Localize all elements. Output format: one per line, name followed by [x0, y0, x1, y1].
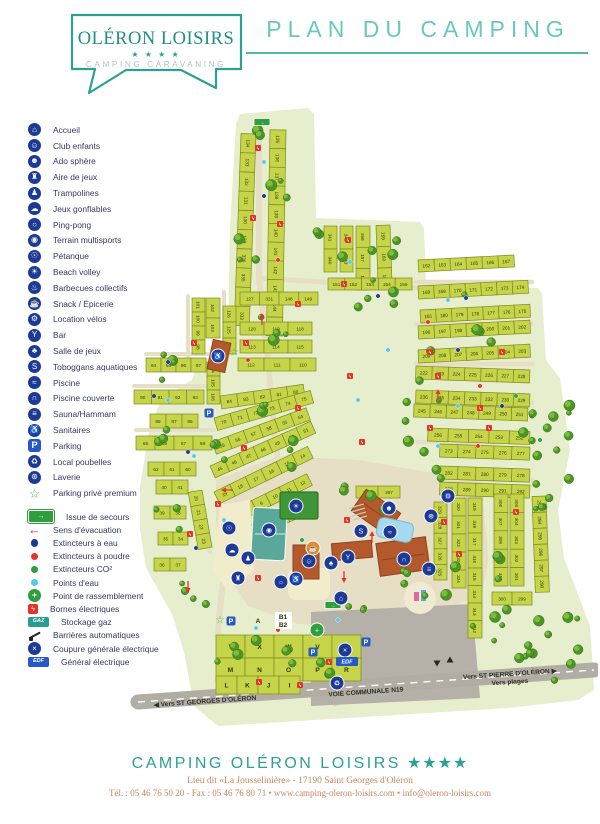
tree — [313, 228, 321, 236]
tree — [316, 658, 325, 667]
legend: ⌂Accueil☺Club enfants☻Ado sphère♜Aire de… — [28, 122, 228, 668]
legend-item-barrieres-automatiques: Barrières automatiques — [28, 629, 228, 642]
tree — [255, 130, 264, 139]
legend-item-issue-de-secours: →Issue de secours — [28, 510, 228, 523]
svg-text:280: 280 — [481, 472, 489, 477]
tree — [533, 615, 544, 626]
tree — [325, 668, 335, 678]
tree — [252, 256, 260, 264]
plot-strip: 341340 — [324, 226, 337, 272]
svg-text:300: 300 — [498, 596, 506, 601]
plot-strip: 127331148149 — [240, 292, 318, 305]
ado-sphere-icon: ☻ — [28, 155, 41, 168]
legend-label: Salle de jeux — [53, 346, 101, 356]
tree — [288, 659, 296, 667]
issue-de-secours-sign: → — [254, 119, 270, 127]
bar-icon: Y — [341, 550, 355, 564]
sauna-hammam-icon: ≡ — [28, 408, 41, 421]
svg-text:236: 236 — [420, 394, 428, 399]
svg-text:☁: ☁ — [229, 547, 236, 554]
svg-text:321: 321 — [456, 521, 461, 529]
legend-label: Parking privé premium — [53, 488, 137, 498]
legend-label: Accueil — [53, 125, 80, 135]
svg-text:248: 248 — [467, 410, 475, 415]
tree — [366, 490, 377, 501]
svg-text:281: 281 — [463, 471, 471, 476]
legend-label: Point de rassemblement — [53, 591, 143, 601]
tree — [553, 447, 560, 454]
legend-item-sauna-hammam: ≡Sauna/Hammam — [28, 406, 228, 422]
legend-label: Snack / Épicerie — [53, 299, 114, 309]
svg-text:319: 319 — [472, 503, 477, 511]
svg-text:154: 154 — [383, 282, 391, 287]
tree — [564, 474, 573, 483]
svg-text:110: 110 — [299, 362, 307, 367]
terrain-multisports-icon: ◉ — [262, 523, 276, 537]
tree — [403, 569, 410, 576]
svg-text:170: 170 — [454, 288, 462, 293]
legend-label: Piscine — [53, 378, 80, 388]
playground-toy — [414, 592, 419, 601]
tree — [566, 659, 575, 668]
edf-label: EDF — [336, 657, 358, 666]
general-electrique-icon: EDF — [28, 657, 49, 667]
legend-item-sanitaires: ♿Sanitaires — [28, 422, 228, 438]
svg-text:☀: ☀ — [293, 502, 299, 510]
svg-text:167: 167 — [502, 259, 510, 264]
legend-item-snack-epicerie: ☕Snack / Épicerie — [28, 296, 228, 312]
local-poubelles-icon: ♻ — [330, 676, 344, 690]
svg-text:165: 165 — [470, 261, 478, 266]
borne-electrique-marker: ϟ — [477, 405, 483, 411]
svg-text:160: 160 — [381, 253, 386, 261]
svg-text:139: 139 — [274, 210, 279, 218]
svg-text:B2: B2 — [279, 622, 288, 629]
svg-text:151: 151 — [332, 282, 340, 287]
legend-label: Local poubelles — [53, 457, 111, 467]
borne-electrique-marker: ϟ — [441, 519, 447, 525]
tree — [529, 409, 537, 417]
legend-label: Piscine couverte — [53, 393, 114, 403]
svg-text:278: 278 — [517, 473, 525, 478]
legend-item-points-eau: Points d'eau — [28, 576, 228, 589]
tree — [526, 649, 534, 657]
svg-text:♟: ♟ — [245, 554, 251, 562]
svg-text:136: 136 — [275, 154, 280, 162]
legend-label: Barbecues collectifs — [53, 283, 127, 293]
petanque-icon: ☉ — [28, 250, 41, 263]
svg-text:♜: ♜ — [235, 574, 241, 582]
tree — [283, 194, 290, 201]
plot-strip: 162163164165166167 — [418, 255, 514, 272]
svg-text:289: 289 — [463, 487, 471, 492]
svg-text:333: 333 — [239, 312, 244, 320]
svg-text:M: M — [228, 667, 233, 674]
borne-electrique-marker: ϟ — [344, 517, 350, 523]
svg-text:207: 207 — [454, 352, 462, 357]
svg-text:234: 234 — [452, 396, 460, 401]
svg-text:P: P — [311, 650, 316, 657]
tree — [263, 402, 268, 407]
plot-strip: 282281280279278 — [440, 466, 530, 482]
tree — [403, 398, 411, 406]
tree — [339, 486, 348, 495]
plot-strip: 151152153154155 — [328, 278, 412, 290]
tree — [266, 180, 277, 191]
extincteur-dot — [456, 404, 460, 408]
parking-icon: P — [28, 439, 41, 452]
svg-text:251: 251 — [516, 412, 524, 417]
bornes-electriques-icon: ϟ — [28, 604, 38, 614]
tree — [390, 300, 398, 308]
tree — [287, 447, 293, 453]
tree — [416, 377, 424, 385]
legend-item-salle-de-jeux: ♣Salle de jeux — [28, 343, 228, 359]
legend-label: Extincteurs CO² — [53, 564, 112, 574]
svg-text:≈: ≈ — [388, 529, 392, 536]
tree — [518, 427, 528, 437]
extincteur-dot — [276, 258, 280, 262]
svg-text:197: 197 — [438, 329, 446, 334]
legend-label: Pétanque — [53, 251, 89, 261]
svg-text:118: 118 — [296, 326, 304, 331]
footer-stars: ★★★★ — [407, 755, 468, 772]
svg-text:115: 115 — [296, 344, 304, 349]
svg-text:L: L — [225, 682, 229, 689]
club-enfants-icon: ☺ — [302, 554, 316, 568]
svg-text:138: 138 — [274, 191, 279, 199]
accueil-icon: ⌂ — [28, 123, 41, 136]
svg-text:313: 313 — [472, 608, 477, 616]
tree — [490, 611, 501, 622]
svg-text:317: 317 — [472, 538, 477, 546]
svg-text:253: 253 — [495, 435, 503, 440]
svg-text:322: 322 — [456, 539, 461, 547]
svg-text:277: 277 — [517, 451, 525, 456]
legend-item-piscine-couverte: ∩Piscine couverte — [28, 391, 228, 407]
svg-text:208: 208 — [438, 353, 446, 358]
barbecues-icon: ♨ — [28, 281, 41, 294]
extincteur-dot — [246, 358, 250, 362]
extincteur-dot — [348, 260, 352, 264]
svg-text:134: 134 — [245, 139, 250, 147]
footer-address: Lieu dit «La Jousselinière» - 17190 Sain… — [0, 776, 600, 786]
svg-text:∩: ∩ — [401, 556, 406, 563]
tree — [548, 412, 558, 422]
beach-volley-icon: ☀ — [289, 499, 303, 513]
borne-electrique-marker: ϟ — [347, 373, 353, 379]
legend-label: Sanitaires — [53, 425, 90, 435]
svg-text:247: 247 — [450, 410, 458, 415]
svg-text:326: 326 — [438, 553, 443, 561]
plot-strip: 306307308309310 — [494, 494, 508, 586]
borne-electrique-marker: ϟ — [255, 575, 261, 581]
aire-de-jeux-icon: ♜ — [28, 171, 41, 184]
legend-item-terrain-multisports: ◉Terrain multisports — [28, 233, 228, 249]
svg-text:230: 230 — [501, 397, 509, 402]
rassemblement-icon: + — [28, 589, 41, 602]
ping-pong-icon: ○ — [274, 575, 288, 589]
svg-text:301: 301 — [514, 573, 519, 581]
sanitaires-icon: ♿ — [289, 572, 303, 586]
extincteur-dot — [426, 320, 430, 324]
svg-text:341: 341 — [328, 234, 333, 242]
svg-text:140: 140 — [273, 229, 278, 237]
legend-label: Club enfants — [53, 141, 100, 151]
svg-text:A: A — [256, 618, 261, 625]
tree — [545, 631, 552, 638]
svg-text:307: 307 — [498, 518, 503, 526]
svg-text:166: 166 — [486, 260, 494, 265]
extincteur-dot — [446, 298, 450, 302]
parking-icon: P — [362, 638, 371, 647]
borne-electrique-marker: ϟ — [456, 551, 462, 557]
tree — [470, 623, 476, 629]
tree — [514, 653, 524, 663]
extincteur-dot — [464, 296, 468, 300]
borne-electrique-marker: ϟ — [427, 425, 433, 431]
sauna-hammam-icon: ≡ — [422, 562, 436, 576]
legend-item-parking: PParking — [28, 438, 228, 454]
svg-text:☕: ☕ — [309, 543, 318, 552]
snack-epicerie-icon: ☕ — [28, 297, 41, 310]
svg-text:177: 177 — [487, 310, 495, 315]
svg-text:120: 120 — [248, 326, 256, 331]
svg-text:171: 171 — [469, 287, 477, 292]
svg-text:222: 222 — [420, 370, 428, 375]
plot-strip: 273274275276277 — [440, 444, 530, 460]
salle-de-jeux-icon: ♣ — [28, 345, 41, 358]
borne-electrique-marker: ϟ — [297, 682, 303, 688]
svg-text:232: 232 — [485, 397, 493, 402]
svg-text:169: 169 — [438, 289, 446, 294]
tree — [500, 622, 505, 627]
legend-item-barbecues: ♨Barbecues collectifs — [28, 280, 228, 296]
tree — [288, 436, 298, 446]
svg-text:164: 164 — [454, 261, 462, 266]
toboggans-icon: S — [354, 524, 368, 538]
svg-text:202: 202 — [518, 325, 526, 330]
extincteur-dot — [476, 444, 480, 448]
extincteur-dot — [262, 194, 266, 198]
svg-text:S: S — [359, 528, 364, 535]
tree — [524, 642, 532, 650]
legend-label: Bar — [53, 330, 66, 340]
legend-label: Terrain multisports — [53, 235, 121, 245]
svg-text:I: I — [289, 682, 291, 689]
footer: CAMPING OLÉRON LOISIRS★★★★ Lieu dit «La … — [0, 753, 600, 798]
tree — [492, 638, 497, 643]
legend-item-laverie: ⊛Laverie — [28, 470, 228, 486]
footer-title: CAMPING OLÉRON LOISIRS★★★★ — [0, 753, 600, 773]
svg-text:176: 176 — [503, 310, 511, 315]
sanitaires-icon: ♿ — [28, 424, 41, 437]
borne-electrique-marker: ϟ — [427, 349, 433, 355]
borne-electrique-marker: ϟ — [486, 425, 492, 431]
svg-text:224: 224 — [452, 372, 460, 377]
svg-text:173: 173 — [501, 286, 509, 291]
svg-text:P: P — [229, 619, 234, 626]
svg-text:⚙: ⚙ — [445, 492, 451, 500]
svg-text:227: 227 — [501, 373, 509, 378]
ping-pong-icon: ○ — [28, 218, 41, 231]
svg-text:131: 131 — [243, 197, 248, 205]
svg-text:304: 304 — [514, 518, 519, 526]
svg-text:256: 256 — [434, 433, 442, 438]
tree — [234, 234, 245, 245]
svg-text:245: 245 — [418, 408, 426, 413]
salle-de-jeux-icon: ♣ — [324, 556, 338, 570]
legend-label: Location vélos — [53, 314, 107, 324]
legend-label: Ado sphère — [53, 156, 96, 166]
svg-text:135: 135 — [275, 135, 280, 143]
tree — [388, 249, 398, 259]
svg-text:162: 162 — [422, 263, 430, 268]
svg-text:☺: ☺ — [305, 558, 312, 565]
svg-text:200: 200 — [486, 326, 494, 331]
svg-text:148: 148 — [285, 296, 293, 301]
tree — [450, 562, 460, 572]
tree — [493, 551, 503, 561]
borne-electrique-marker: ϟ — [499, 349, 505, 355]
legend-label: Issue de secours — [66, 512, 129, 522]
bar-icon: Y — [28, 329, 41, 342]
tree — [420, 447, 429, 456]
svg-text:249: 249 — [483, 411, 491, 416]
sens-evacuation-icon: ← — [28, 523, 41, 536]
legend-item-jeux-gonflables: ☁Jeux gonflables — [28, 201, 228, 217]
barrieres-automatiques-icon — [28, 629, 41, 642]
svg-text:K: K — [245, 682, 250, 689]
accueil-icon: ⌂ — [334, 591, 348, 605]
footer-title-text: CAMPING OLÉRON LOISIRS — [132, 755, 401, 772]
legend-label: Barrières automatiques — [53, 630, 140, 640]
svg-text:×: × — [343, 647, 347, 654]
plot-strip: 300299 — [492, 592, 532, 605]
svg-text:158: 158 — [360, 233, 365, 241]
legend-label: Aire de jeux — [53, 172, 97, 182]
extincteur-dot — [514, 394, 518, 398]
location-velos-icon: ⚙ — [28, 313, 41, 326]
tree — [437, 474, 445, 482]
svg-text:275: 275 — [481, 450, 489, 455]
svg-text:308: 308 — [498, 536, 503, 544]
legend-item-parking-premium: ☆Parking privé premium — [28, 485, 228, 501]
extincteur-dot — [386, 348, 390, 352]
svg-text:206: 206 — [470, 351, 478, 356]
svg-text:133: 133 — [245, 159, 250, 167]
legend-item-extincteur-poudre: Extincteurs à poudre — [28, 550, 228, 563]
legend-item-trampolines: ♟Trampolines — [28, 185, 228, 201]
parking-premium-icon: ☆ — [28, 487, 41, 500]
svg-text:233: 233 — [469, 396, 477, 401]
tree — [495, 576, 502, 583]
svg-text:180: 180 — [440, 313, 448, 318]
svg-text:255: 255 — [454, 433, 462, 438]
tree — [566, 410, 571, 415]
svg-text:273: 273 — [445, 448, 453, 453]
legend-item-local-poubelles: ♻Local poubelles — [28, 454, 228, 470]
extincteur-dot — [300, 538, 304, 542]
extincteur-dot — [376, 294, 380, 298]
borne-electrique-marker: ϟ — [295, 301, 301, 307]
legend-item-sens-evacuation: ←Sens d'évacuation — [28, 523, 228, 536]
tree — [422, 593, 428, 599]
legend-label: Laverie — [53, 472, 80, 482]
extincteur-dot — [456, 348, 460, 352]
svg-text:♣: ♣ — [329, 560, 334, 567]
tree — [545, 494, 553, 502]
svg-text:B1: B1 — [279, 614, 288, 621]
legend-item-extincteur-co2: Extincteurs CO² — [28, 563, 228, 576]
snack-epicerie-icon: ☕ — [306, 541, 320, 555]
svg-text:291: 291 — [499, 488, 507, 493]
tree — [346, 603, 352, 609]
legend-label: Coupure générale électrique — [53, 644, 159, 654]
svg-text:163: 163 — [438, 262, 446, 267]
legend-label: Ping-pong — [53, 220, 91, 230]
svg-text:325: 325 — [438, 568, 443, 576]
svg-text:EDF: EDF — [342, 660, 354, 666]
borne-electrique-marker: ϟ — [241, 445, 247, 451]
svg-text:O: O — [286, 667, 291, 674]
svg-text:303: 303 — [514, 536, 519, 544]
legend-item-rassemblement: +Point de rassemblement — [28, 589, 228, 602]
svg-text:201: 201 — [502, 325, 510, 330]
legend-item-petanque: ☉Pétanque — [28, 248, 228, 264]
logo-banner: OLÉRON LOISIRS ★ ★ ★ ★ CAMPING CARAVANIN… — [64, 12, 249, 102]
piscine-icon: ≈ — [383, 525, 397, 539]
tree — [338, 252, 348, 262]
legend-item-club-enfants: ☺Club enfants — [28, 138, 228, 154]
svg-text:314: 314 — [472, 590, 477, 598]
legend-item-toboggans: SToboggans aquatiques — [28, 359, 228, 375]
tree — [564, 431, 573, 440]
borne-electrique-marker: ϟ — [345, 237, 351, 243]
svg-text:Y: Y — [346, 554, 351, 561]
legend-item-aire-de-jeux: ♜Aire de jeux — [28, 169, 228, 185]
local-poubelles-icon: ♻ — [28, 455, 41, 468]
logo-title: OLÉRON LOISIRS — [78, 27, 235, 49]
legend-item-beach-volley: ☀Beach volley — [28, 264, 228, 280]
legend-label: Toboggans aquatiques — [53, 362, 137, 372]
borne-electrique-marker: ϟ — [243, 340, 249, 346]
svg-text:203: 203 — [518, 349, 526, 354]
svg-text:149: 149 — [304, 296, 312, 301]
svg-text:♻: ♻ — [334, 680, 340, 687]
svg-text:☆: ☆ — [229, 347, 239, 359]
tree — [287, 462, 296, 471]
legend-item-ping-pong: ○Ping-pong — [28, 217, 228, 233]
svg-text:306: 306 — [498, 499, 503, 507]
svg-text:250: 250 — [499, 411, 507, 416]
svg-text:297: 297 — [539, 564, 544, 572]
playground-area — [404, 582, 436, 614]
borne-electrique-marker: ϟ — [513, 509, 519, 515]
borne-electrique-marker: ϟ — [255, 145, 261, 151]
legend-label: Sauna/Hammam — [53, 409, 116, 419]
svg-text:⊛: ⊛ — [428, 513, 434, 520]
svg-text:127: 127 — [246, 296, 254, 301]
svg-text:P: P — [364, 640, 369, 647]
extincteur-dot — [336, 618, 340, 622]
svg-text:113: 113 — [248, 344, 256, 349]
svg-text:305: 305 — [514, 499, 519, 507]
svg-text:327: 327 — [438, 537, 443, 545]
svg-text:141: 141 — [273, 248, 278, 256]
svg-text:228: 228 — [518, 374, 526, 379]
svg-text:+: + — [315, 627, 319, 634]
